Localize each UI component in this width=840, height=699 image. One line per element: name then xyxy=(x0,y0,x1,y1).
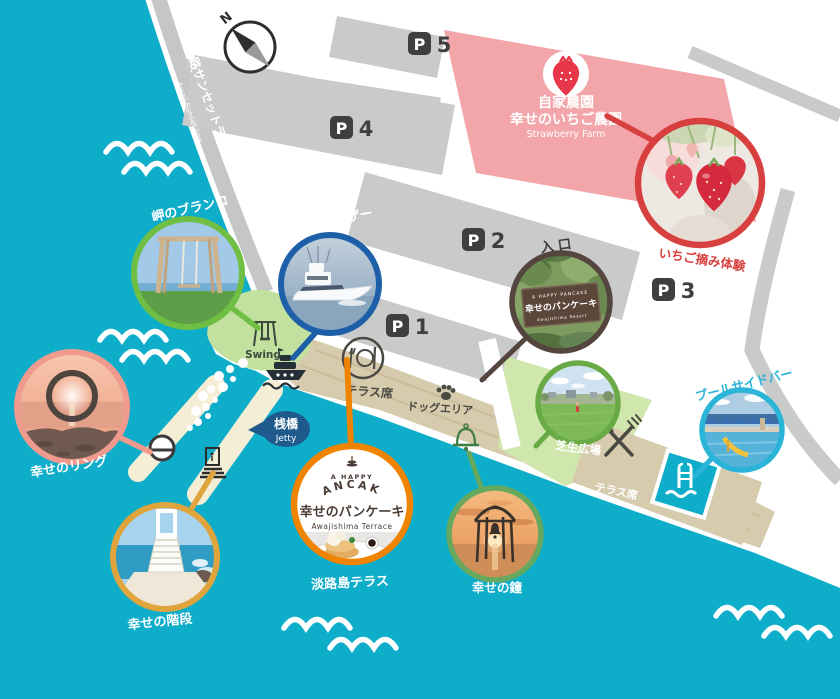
p-number: 4 xyxy=(359,117,374,141)
p-icon: P xyxy=(392,317,404,336)
map-canvas: 自家農園 幸せのいちご農園 Strawberry Farm xyxy=(0,0,840,699)
p-icon: P xyxy=(468,231,480,250)
p-number: 5 xyxy=(437,33,452,57)
parking-marker-p2: P 2 xyxy=(462,228,505,253)
farm-label-line2: 幸せのいちご農園 xyxy=(510,111,622,128)
p-number: 2 xyxy=(491,229,506,253)
p-icon: P xyxy=(336,119,348,138)
p-number: 1 xyxy=(415,315,430,339)
resort-map: 自家農園 幸せのいちご農園 Strawberry Farm xyxy=(0,0,840,699)
entrance-sign: A HAPPY PANCAKE 幸せのパンケーキ Awajishima Reso… xyxy=(521,283,600,327)
farm-label-line1: 自家農園 xyxy=(538,94,594,111)
parking-marker-p4: P 4 xyxy=(330,116,373,141)
logo-main: 幸せのパンケーキ xyxy=(300,504,405,520)
parking-marker-p3: P 3 xyxy=(652,278,695,303)
p-icon: P xyxy=(414,35,426,54)
farm-label-line3: Strawberry Farm xyxy=(527,129,606,140)
logo-sub: Awajishima Terrace xyxy=(311,522,392,531)
connector-terrace xyxy=(347,360,351,445)
jetty-label-jp: 桟橋 xyxy=(274,416,299,431)
swing-label: Swing xyxy=(245,349,281,361)
jetty-label-en: Jetty xyxy=(275,434,297,444)
parking-marker-p5: P 5 xyxy=(408,32,451,57)
spot-bell-label: 幸せの鐘 xyxy=(472,580,523,595)
p-number: 3 xyxy=(681,279,696,303)
p-icon: P xyxy=(658,281,670,300)
parking-marker-p1: P 1 xyxy=(386,314,429,339)
ring-icon xyxy=(150,436,174,460)
